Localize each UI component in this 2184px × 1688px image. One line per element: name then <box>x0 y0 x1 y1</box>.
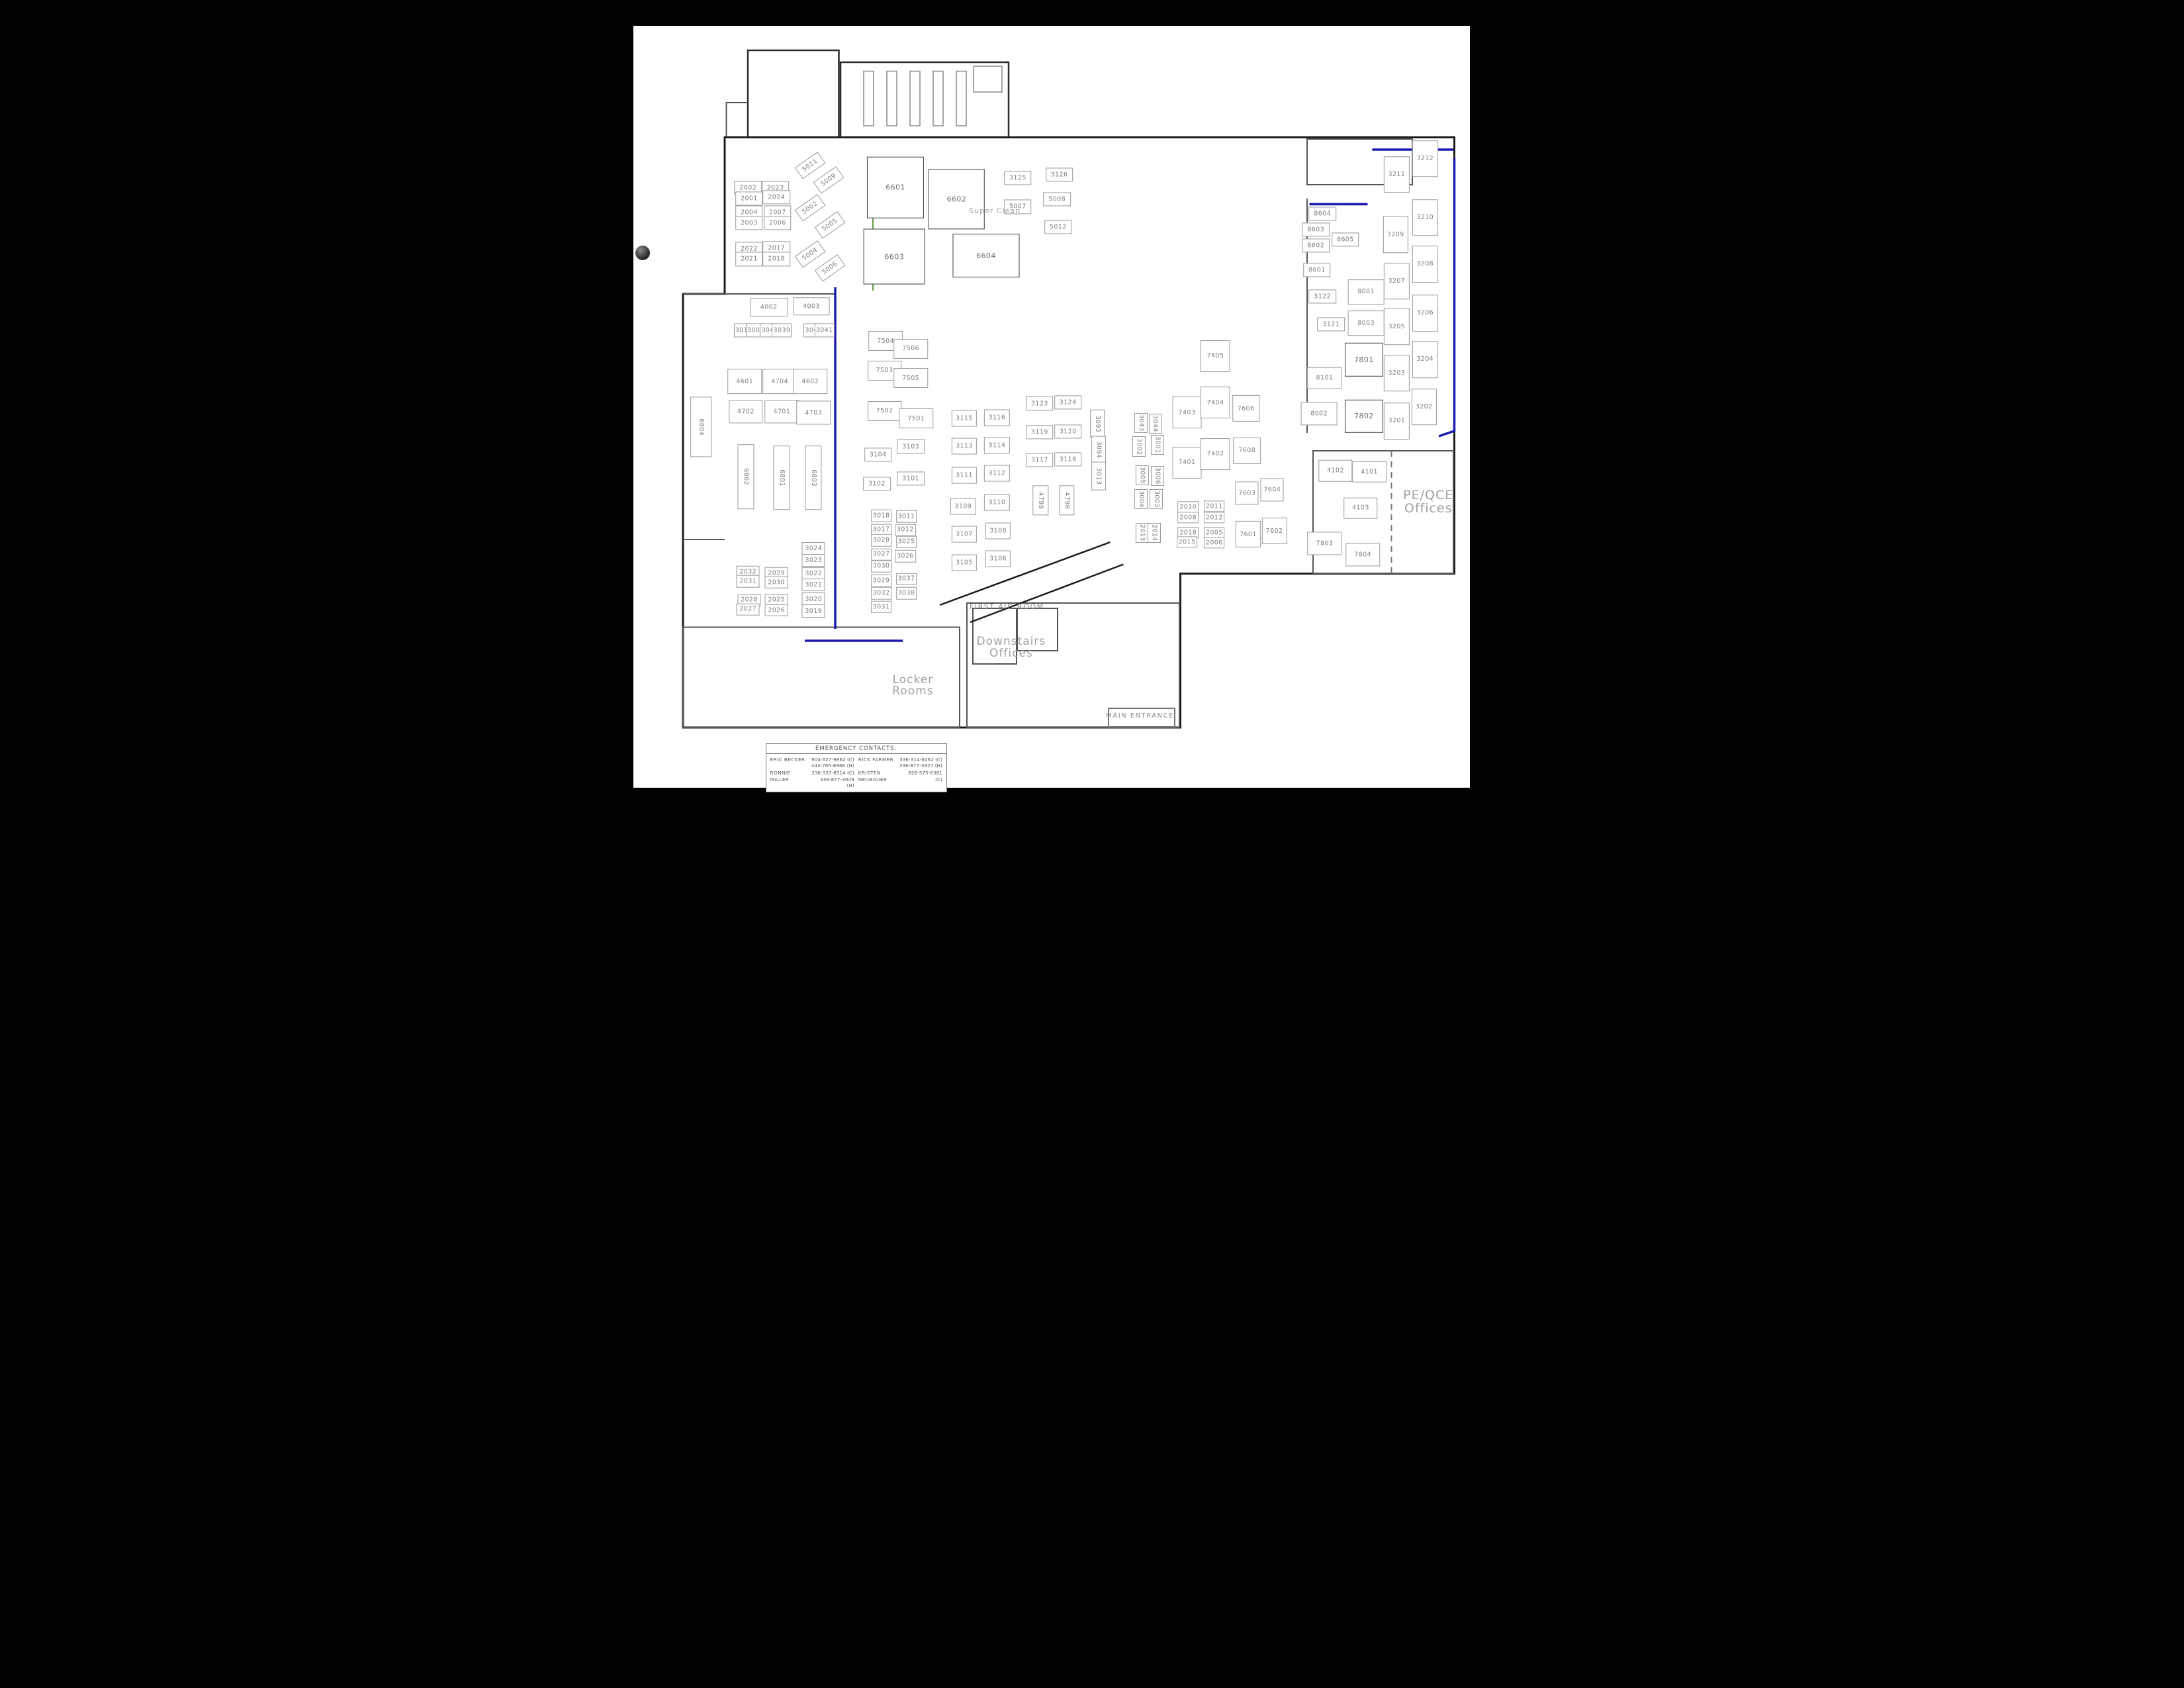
room-7606: 7606 <box>1232 395 1260 422</box>
room-7608: 7608 <box>1234 438 1261 464</box>
area-label: PE/QCE Offices <box>1403 489 1453 516</box>
contact-name: RONNIE MILLER <box>770 770 811 788</box>
emergency-contacts-grid: ERIC BECKER904-527-9862 (C) 443-765-8966… <box>766 754 946 792</box>
room-8605: 8605 <box>1332 233 1359 247</box>
room-2013: 2013 <box>1136 522 1149 542</box>
room-6804: 6804 <box>690 397 711 457</box>
room-3210: 3210 <box>1412 199 1437 236</box>
room-7404: 7404 <box>1201 387 1230 418</box>
room-4002: 4002 <box>750 298 788 316</box>
room-3126: 3126 <box>1046 167 1073 181</box>
room-6801: 6801 <box>774 445 790 510</box>
room-3124: 3124 <box>1054 396 1082 410</box>
nw-annex-wall <box>727 103 749 136</box>
room-8602: 8602 <box>1302 238 1330 252</box>
room-3025: 3025 <box>896 536 917 548</box>
room-3115: 3115 <box>952 410 977 427</box>
room-4103: 4103 <box>1343 497 1378 519</box>
room-3104: 3104 <box>864 448 892 462</box>
area-label: FIRST AID ROOM <box>970 603 1044 611</box>
area-label: Downstairs Offices <box>977 636 1046 660</box>
room-8003: 8003 <box>1348 310 1385 336</box>
room-3117: 3117 <box>1026 453 1054 467</box>
room-2027: 2027 <box>737 603 760 616</box>
contact-phones: 828-575-6361 (C) <box>905 770 942 788</box>
room-3107: 3107 <box>952 526 977 543</box>
screen-background: 2002200120232024200420032007200620222021… <box>546 0 1638 844</box>
room-4101: 4101 <box>1352 461 1387 483</box>
room-3109: 3109 <box>950 498 976 515</box>
room-3027: 3027 <box>871 548 892 561</box>
room-2001: 2001 <box>735 191 763 205</box>
room-3002: 3002 <box>1132 436 1146 456</box>
room-4601: 4601 <box>728 369 762 394</box>
room-2006: 2006 <box>764 216 792 230</box>
room-7802: 7802 <box>1345 399 1383 432</box>
room-2024: 2024 <box>762 191 790 205</box>
cafeteria-wall <box>841 62 1009 136</box>
room-7405: 7405 <box>1201 340 1230 372</box>
room-3113: 3113 <box>952 438 977 455</box>
room-8601: 8601 <box>1303 263 1331 277</box>
room-3120: 3120 <box>1054 424 1082 438</box>
room-5012: 5012 <box>1044 220 1072 234</box>
room-3043: 3043 <box>1134 413 1148 433</box>
diagonal-wall-1 <box>940 542 1111 605</box>
room-2011: 2011 <box>1204 500 1225 512</box>
room-4003: 4003 <box>794 297 830 316</box>
room-3005: 3005 <box>1136 465 1149 485</box>
room-3021: 3021 <box>802 579 825 592</box>
room-3037: 3037 <box>896 573 917 585</box>
room-3208: 3208 <box>1412 246 1437 283</box>
contact-phones: 336-314-6062 (C) 336-877-3927 (H) <box>899 757 942 769</box>
room-3019: 3019 <box>802 604 825 618</box>
room-3114: 3114 <box>984 438 1009 454</box>
emergency-contact-entry: KRISTEN NEUBAUER828-575-6361 (C) <box>858 770 942 788</box>
room-7506: 7506 <box>893 339 928 359</box>
room-3030: 3030 <box>871 560 892 573</box>
room-3011: 3011 <box>896 510 917 523</box>
emergency-contact-entry: RONNIE MILLER336-337-8514 (C) 336-877-30… <box>770 770 854 788</box>
room-6803: 6803 <box>805 445 822 510</box>
room-6601: 6601 <box>867 157 924 218</box>
room-2021: 2021 <box>735 252 763 266</box>
room-3039: 3039 <box>772 323 792 337</box>
room-2012: 2012 <box>1204 512 1225 523</box>
room-2006: 2006 <box>1204 537 1225 548</box>
room-3201: 3201 <box>1384 402 1409 440</box>
emergency-contacts-title: EMERGENCY CONTACTS: <box>766 744 946 754</box>
room-3044: 3044 <box>1149 414 1162 434</box>
room-7604: 7604 <box>1261 478 1284 501</box>
room-4799: 4799 <box>1033 485 1048 515</box>
room-3101: 3101 <box>897 471 925 485</box>
room-3212: 3212 <box>1412 140 1437 177</box>
room-3093: 3093 <box>1090 410 1105 438</box>
room-3121: 3121 <box>1318 317 1345 331</box>
room-3094: 3094 <box>1091 436 1106 464</box>
area-label: Super Clean <box>969 207 1021 215</box>
nw-wing-wall <box>748 50 839 136</box>
room-7804: 7804 <box>1345 543 1380 566</box>
room-3026: 3026 <box>895 550 916 563</box>
room-3206: 3206 <box>1412 295 1437 332</box>
emergency-contact-entry: ERIC BECKER904-527-9862 (C) 443-765-8966… <box>770 757 854 769</box>
room-3023: 3023 <box>802 554 825 567</box>
room-3207: 3207 <box>1384 263 1409 300</box>
room-6604: 6604 <box>952 234 1019 277</box>
room-3032: 3032 <box>871 587 892 600</box>
room-4701: 4701 <box>765 400 799 424</box>
room-4704: 4704 <box>762 369 797 394</box>
room-2008: 2008 <box>1177 512 1199 523</box>
room-2018: 2018 <box>762 252 790 266</box>
room-7502: 7502 <box>868 401 902 421</box>
room-3111: 3111 <box>952 467 977 483</box>
room-7402: 7402 <box>1201 438 1230 470</box>
room-7602: 7602 <box>1261 518 1287 544</box>
room-3108: 3108 <box>985 523 1011 539</box>
room-8101: 8101 <box>1308 367 1342 389</box>
contact-phones: 904-527-9862 (C) 443-765-8966 (H) <box>811 757 854 769</box>
room-8002: 8002 <box>1301 402 1338 425</box>
room-7803: 7803 <box>1308 532 1342 555</box>
room-6602: 6602 <box>929 169 985 229</box>
room-3125: 3125 <box>1004 171 1032 185</box>
diagonal-wall-2 <box>970 565 1124 623</box>
emergency-contacts-table: EMERGENCY CONTACTS: ERIC BECKER904-527-9… <box>766 743 947 792</box>
room-4703: 4703 <box>797 401 831 424</box>
room-3031: 3031 <box>871 600 892 613</box>
contact-name: ERIC BECKER <box>770 757 805 769</box>
area-label: Locker Rooms <box>892 675 933 698</box>
room-3038: 3038 <box>896 587 917 600</box>
room-4602: 4602 <box>794 369 828 394</box>
room-3004: 3004 <box>1134 489 1148 508</box>
room-3116: 3116 <box>984 410 1009 426</box>
room-3003: 3003 <box>1150 489 1163 508</box>
blue-accent-lines <box>805 150 1455 641</box>
room-3105: 3105 <box>952 555 977 571</box>
room-3018: 3018 <box>871 510 892 522</box>
room-7501: 7501 <box>899 408 934 428</box>
room-3001: 3001 <box>1151 435 1164 455</box>
room-8604: 8604 <box>1308 207 1336 220</box>
room-3122: 3122 <box>1308 289 1336 303</box>
cafeteria-tables <box>864 66 1002 126</box>
room-7505: 7505 <box>893 368 928 388</box>
room-7601: 7601 <box>1236 521 1261 547</box>
room-2031: 2031 <box>737 575 760 588</box>
room-7801: 7801 <box>1345 343 1383 376</box>
room-8001: 8001 <box>1348 279 1385 305</box>
room-3205: 3205 <box>1384 308 1409 346</box>
room-3029: 3029 <box>871 575 892 587</box>
room-3028: 3028 <box>871 534 892 547</box>
room-3110: 3110 <box>984 494 1009 510</box>
room-3118: 3118 <box>1054 452 1082 466</box>
room-3102: 3102 <box>863 477 891 491</box>
room-7603: 7603 <box>1236 481 1259 504</box>
emergency-contact-entry: RICK FARMER336-314-6062 (C) 336-877-3927… <box>858 757 942 769</box>
room-7401: 7401 <box>1172 447 1202 479</box>
room-3119: 3119 <box>1026 425 1054 439</box>
room-4702: 4702 <box>729 400 763 424</box>
room-3013: 3013 <box>1091 462 1106 491</box>
room-2030: 2030 <box>765 576 788 588</box>
room-3202: 3202 <box>1411 389 1436 426</box>
room-4798: 4798 <box>1059 485 1074 515</box>
contact-name: RICK FARMER <box>858 757 893 769</box>
room-6603: 6603 <box>864 228 925 285</box>
room-3012: 3012 <box>895 524 916 536</box>
room-5008: 5008 <box>1043 192 1071 206</box>
area-label: MAIN ENTRANCE <box>1106 713 1174 720</box>
room-2026: 2026 <box>765 604 788 617</box>
room-8603: 8603 <box>1302 222 1330 236</box>
room-2014: 2014 <box>1148 522 1161 542</box>
room-2015: 2015 <box>1177 536 1198 547</box>
room-3106: 3106 <box>985 551 1011 567</box>
room-4102: 4102 <box>1318 460 1353 482</box>
room-6802: 6802 <box>737 445 754 510</box>
room-2003: 2003 <box>735 216 763 230</box>
room-3123: 3123 <box>1026 397 1054 410</box>
room-3006: 3006 <box>1151 466 1164 486</box>
contact-phones: 336-337-8514 (C) 336-877-3049 (H) <box>811 770 854 788</box>
room-3112: 3112 <box>984 465 1009 482</box>
room-7403: 7403 <box>1172 397 1202 429</box>
floor-plan: 2002200120232024200420032007200620222021… <box>546 0 1638 844</box>
room-3103: 3103 <box>897 440 925 453</box>
contact-name: KRISTEN NEUBAUER <box>858 770 905 788</box>
room-3209: 3209 <box>1383 216 1408 254</box>
room-3041: 3041 <box>815 323 835 337</box>
room-3211: 3211 <box>1384 156 1409 193</box>
room-3203: 3203 <box>1384 355 1409 392</box>
room-3204: 3204 <box>1412 341 1437 378</box>
